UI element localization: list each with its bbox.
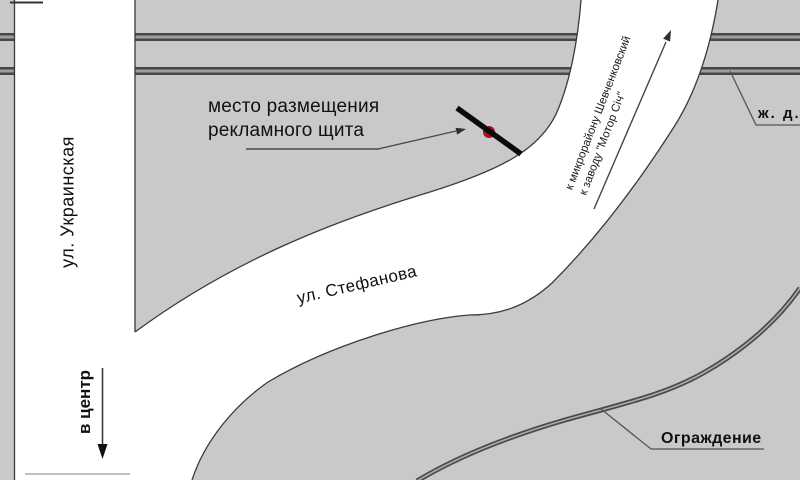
railroad-label: ж. д. xyxy=(758,105,800,122)
site-location-map: место размещения рекламного щита ул. Укр… xyxy=(0,0,800,480)
map-canvas xyxy=(0,0,800,480)
billboard-placement-label-line1: место размещения xyxy=(208,95,379,119)
fence-label: Ограждение xyxy=(661,430,762,448)
billboard-placement-label: место размещения рекламного щита xyxy=(208,95,379,142)
direction-label-to-center: в центр xyxy=(75,370,95,434)
street-label-ukrainskaya: ул. Украинская xyxy=(58,136,79,268)
billboard-placement-label-line2: рекламного щита xyxy=(208,119,379,143)
